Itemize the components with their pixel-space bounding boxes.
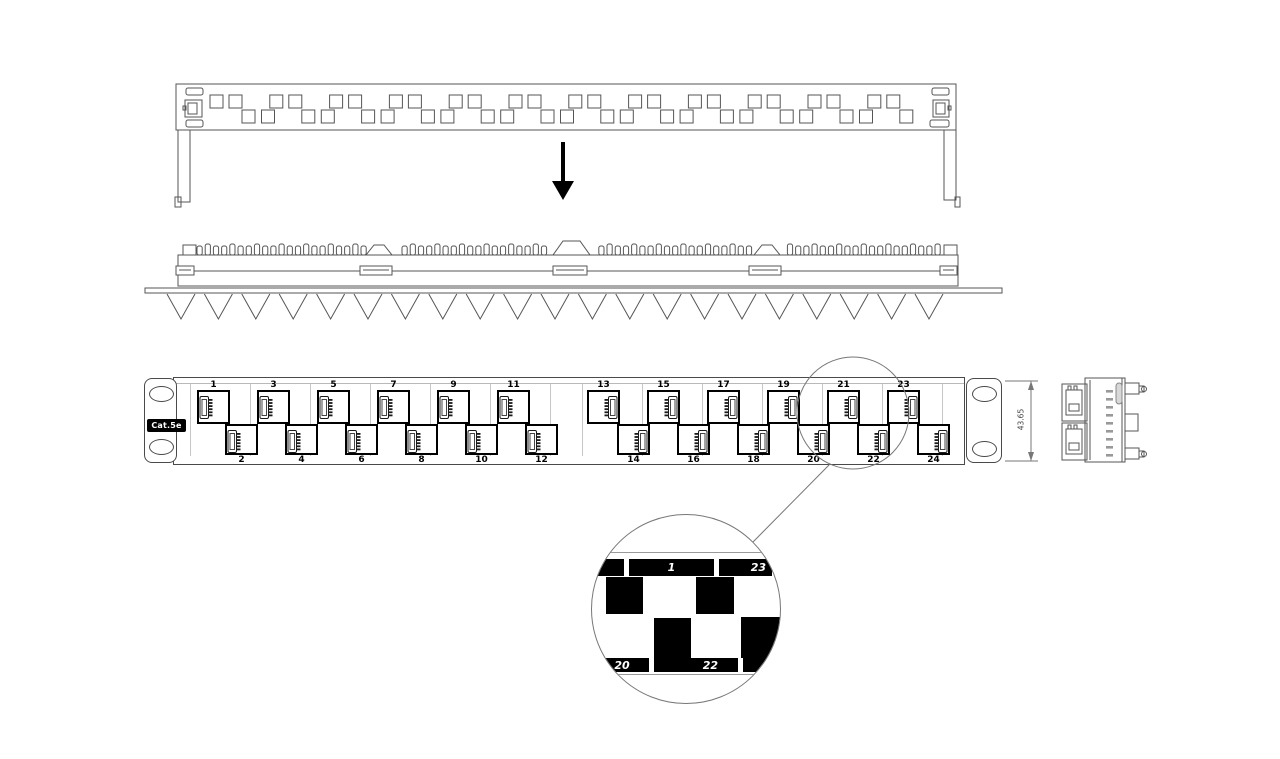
rj45-jack-icon <box>603 394 618 421</box>
rj45-jack-icon <box>633 428 648 455</box>
port-number-label: 11 <box>497 381 530 389</box>
port-number-label: 21 <box>827 381 860 389</box>
rj45-jack-icon <box>933 428 948 455</box>
port-number-label: 16 <box>677 456 710 464</box>
port-opening <box>707 390 740 424</box>
rj45-jack-icon <box>663 394 678 421</box>
module-divider-line <box>582 384 583 456</box>
detail-zoom-view: 1 23 20 22 <box>591 514 781 704</box>
mounting-hole <box>149 386 174 402</box>
port-opening <box>225 424 258 455</box>
rj45-jack-icon <box>903 394 918 421</box>
port-opening <box>827 390 860 424</box>
port-opening <box>647 390 680 424</box>
rj45-jack-icon <box>843 394 858 421</box>
detail-port-number: 1 <box>668 562 676 573</box>
port-opening <box>887 390 920 424</box>
detail-edge-line <box>592 552 781 553</box>
port-opening <box>525 424 558 455</box>
detail-label-band: 20 <box>595 658 649 672</box>
height-dimension-label: 43.65 <box>1017 394 1028 446</box>
port-number-label: 17 <box>707 381 740 389</box>
port-opening <box>317 390 350 424</box>
port-number-label: 5 <box>317 381 350 389</box>
port-number-label: 6 <box>345 456 378 464</box>
port-opening <box>587 390 620 424</box>
port-number-label: 13 <box>587 381 620 389</box>
port-number-label: 4 <box>285 456 318 464</box>
rj45-jack-icon <box>287 428 302 455</box>
detail-port-opening <box>696 577 734 614</box>
rj45-jack-icon <box>693 428 708 455</box>
detail-port-number: 20 <box>614 660 629 671</box>
port-opening <box>257 390 290 424</box>
rj45-jack-icon <box>783 394 798 421</box>
port-number-label: 7 <box>377 381 410 389</box>
port-number-label: 18 <box>737 456 770 464</box>
port-opening <box>497 390 530 424</box>
detail-port-number: 23 <box>751 562 766 573</box>
rj45-jack-icon <box>753 428 768 455</box>
rj45-jack-icon <box>813 428 828 455</box>
port-opening <box>197 390 230 424</box>
detail-port-opening <box>654 618 691 658</box>
detail-label-band <box>743 658 781 672</box>
detail-label-band: 23 <box>719 559 772 576</box>
port-number-label: 23 <box>887 381 920 389</box>
detail-port-number: 22 <box>703 660 718 671</box>
detail-port-opening <box>741 617 781 658</box>
port-opening <box>677 424 710 455</box>
rj45-jack-icon <box>259 394 274 421</box>
port-number-label: 15 <box>647 381 680 389</box>
module-divider-line <box>190 384 191 456</box>
mounting-hole <box>972 386 997 402</box>
rj45-jack-icon <box>527 428 542 455</box>
port-opening <box>405 424 438 455</box>
port-number-label: 8 <box>405 456 438 464</box>
port-number-label: 14 <box>617 456 650 464</box>
port-opening <box>345 424 378 455</box>
detail-edge-line <box>592 674 781 675</box>
port-opening <box>437 390 470 424</box>
rj45-jack-icon <box>467 428 482 455</box>
rj45-jack-icon <box>499 394 514 421</box>
rj45-jack-icon <box>319 394 334 421</box>
mounting-hole <box>972 441 997 457</box>
rj45-jack-icon <box>407 428 422 455</box>
patch-panel-technical-drawing: Cat.5e 1 3 5 7 9 11 13 15 17 19 21 23 <box>0 0 1280 759</box>
port-opening <box>377 390 410 424</box>
port-opening <box>737 424 770 455</box>
port-number-label: 19 <box>767 381 800 389</box>
rj45-jack-icon <box>439 394 454 421</box>
detail-label-band: 1 <box>629 559 714 576</box>
port-opening <box>617 424 650 455</box>
port-number-label: 10 <box>465 456 498 464</box>
rj45-jack-icon <box>199 394 214 421</box>
port-opening <box>797 424 830 455</box>
port-number-label: 24 <box>917 456 950 464</box>
port-number-label: 1 <box>197 381 230 389</box>
port-number-label: 20 <box>797 456 830 464</box>
rj45-jack-icon <box>227 428 242 455</box>
port-opening <box>767 390 800 424</box>
category-label-badge: Cat.5e <box>147 419 186 432</box>
detail-label-band: 22 <box>654 658 738 672</box>
port-opening <box>465 424 498 455</box>
port-number-label: 2 <box>225 456 258 464</box>
rj45-jack-icon <box>347 428 362 455</box>
rj45-jack-icon <box>723 394 738 421</box>
port-number-label: 9 <box>437 381 470 389</box>
port-opening <box>917 424 950 455</box>
port-number-label: 12 <box>525 456 558 464</box>
port-opening <box>857 424 890 455</box>
rj45-jack-icon <box>379 394 394 421</box>
port-opening <box>285 424 318 455</box>
detail-port-opening <box>606 577 643 614</box>
rj45-jack-icon <box>873 428 888 455</box>
port-number-label: 3 <box>257 381 290 389</box>
port-number-label: 22 <box>857 456 890 464</box>
detail-label-band <box>592 559 624 576</box>
mounting-hole <box>149 439 174 455</box>
